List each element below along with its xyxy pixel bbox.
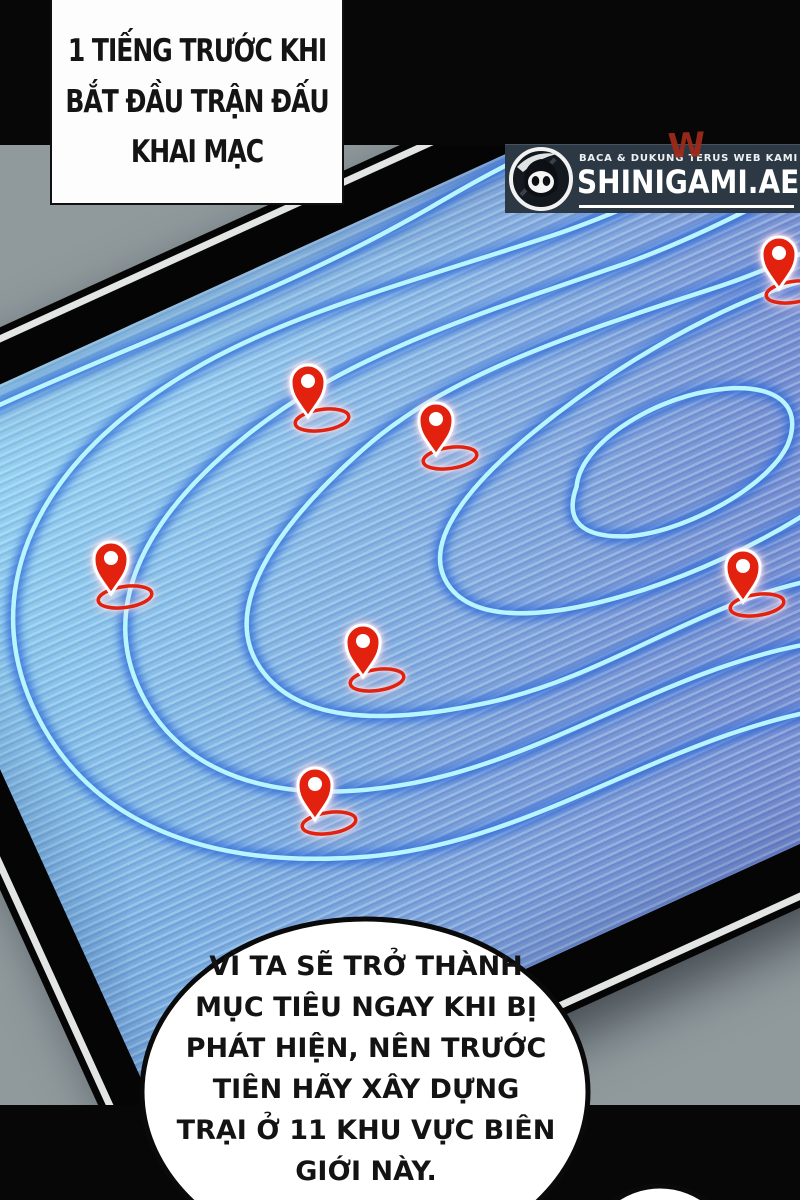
shinigami-reaper-icon: [507, 145, 575, 213]
caption-line: BẮT ĐẦU TRẬN ĐẤU: [65, 76, 328, 127]
speech-line: GIỚI NÀY.: [148, 1151, 584, 1192]
speech-line: TIÊN HÃY XÂY DỰNG: [148, 1069, 584, 1110]
caption-line: 1 TIẾNG TRƯỚC KHI: [65, 26, 328, 77]
speech-line: PHÁT HIỆN, NÊN TRƯỚC: [148, 1028, 584, 1069]
narration-caption-box: 1 TIẾNG TRƯỚC KHI BẮT ĐẦU TRẬN ĐẤU KHAI …: [50, 0, 344, 205]
watermark-banner: BACA & DUKUNG TERUS WEB KAMI SHINIGAMI.A…: [505, 144, 800, 213]
red-brush-mark: W: [667, 125, 707, 167]
speech-line: VÌ TA SẼ TRỞ THÀNH: [148, 946, 584, 987]
comic-page: 1 TIẾNG TRƯỚC KHI BẮT ĐẦU TRẬN ĐẤU KHAI …: [0, 0, 800, 1200]
caption-line: KHAI MẠC: [65, 127, 328, 178]
caption-text: 1 TIẾNG TRƯỚC KHI BẮT ĐẦU TRẬN ĐẤU KHAI …: [65, 26, 328, 178]
speech-line: TRẠI Ở 11 KHU VỰC BIÊN: [148, 1110, 584, 1151]
speech-text: VÌ TA SẼ TRỞ THÀNH MỤC TIÊU NGAY KHI BỊ …: [148, 946, 584, 1192]
speech-line: MỤC TIÊU NGAY KHI BỊ: [148, 987, 584, 1028]
watermark-site-name: SHINIGAMI.AE: [577, 163, 799, 201]
watermark-underline: [579, 205, 794, 208]
